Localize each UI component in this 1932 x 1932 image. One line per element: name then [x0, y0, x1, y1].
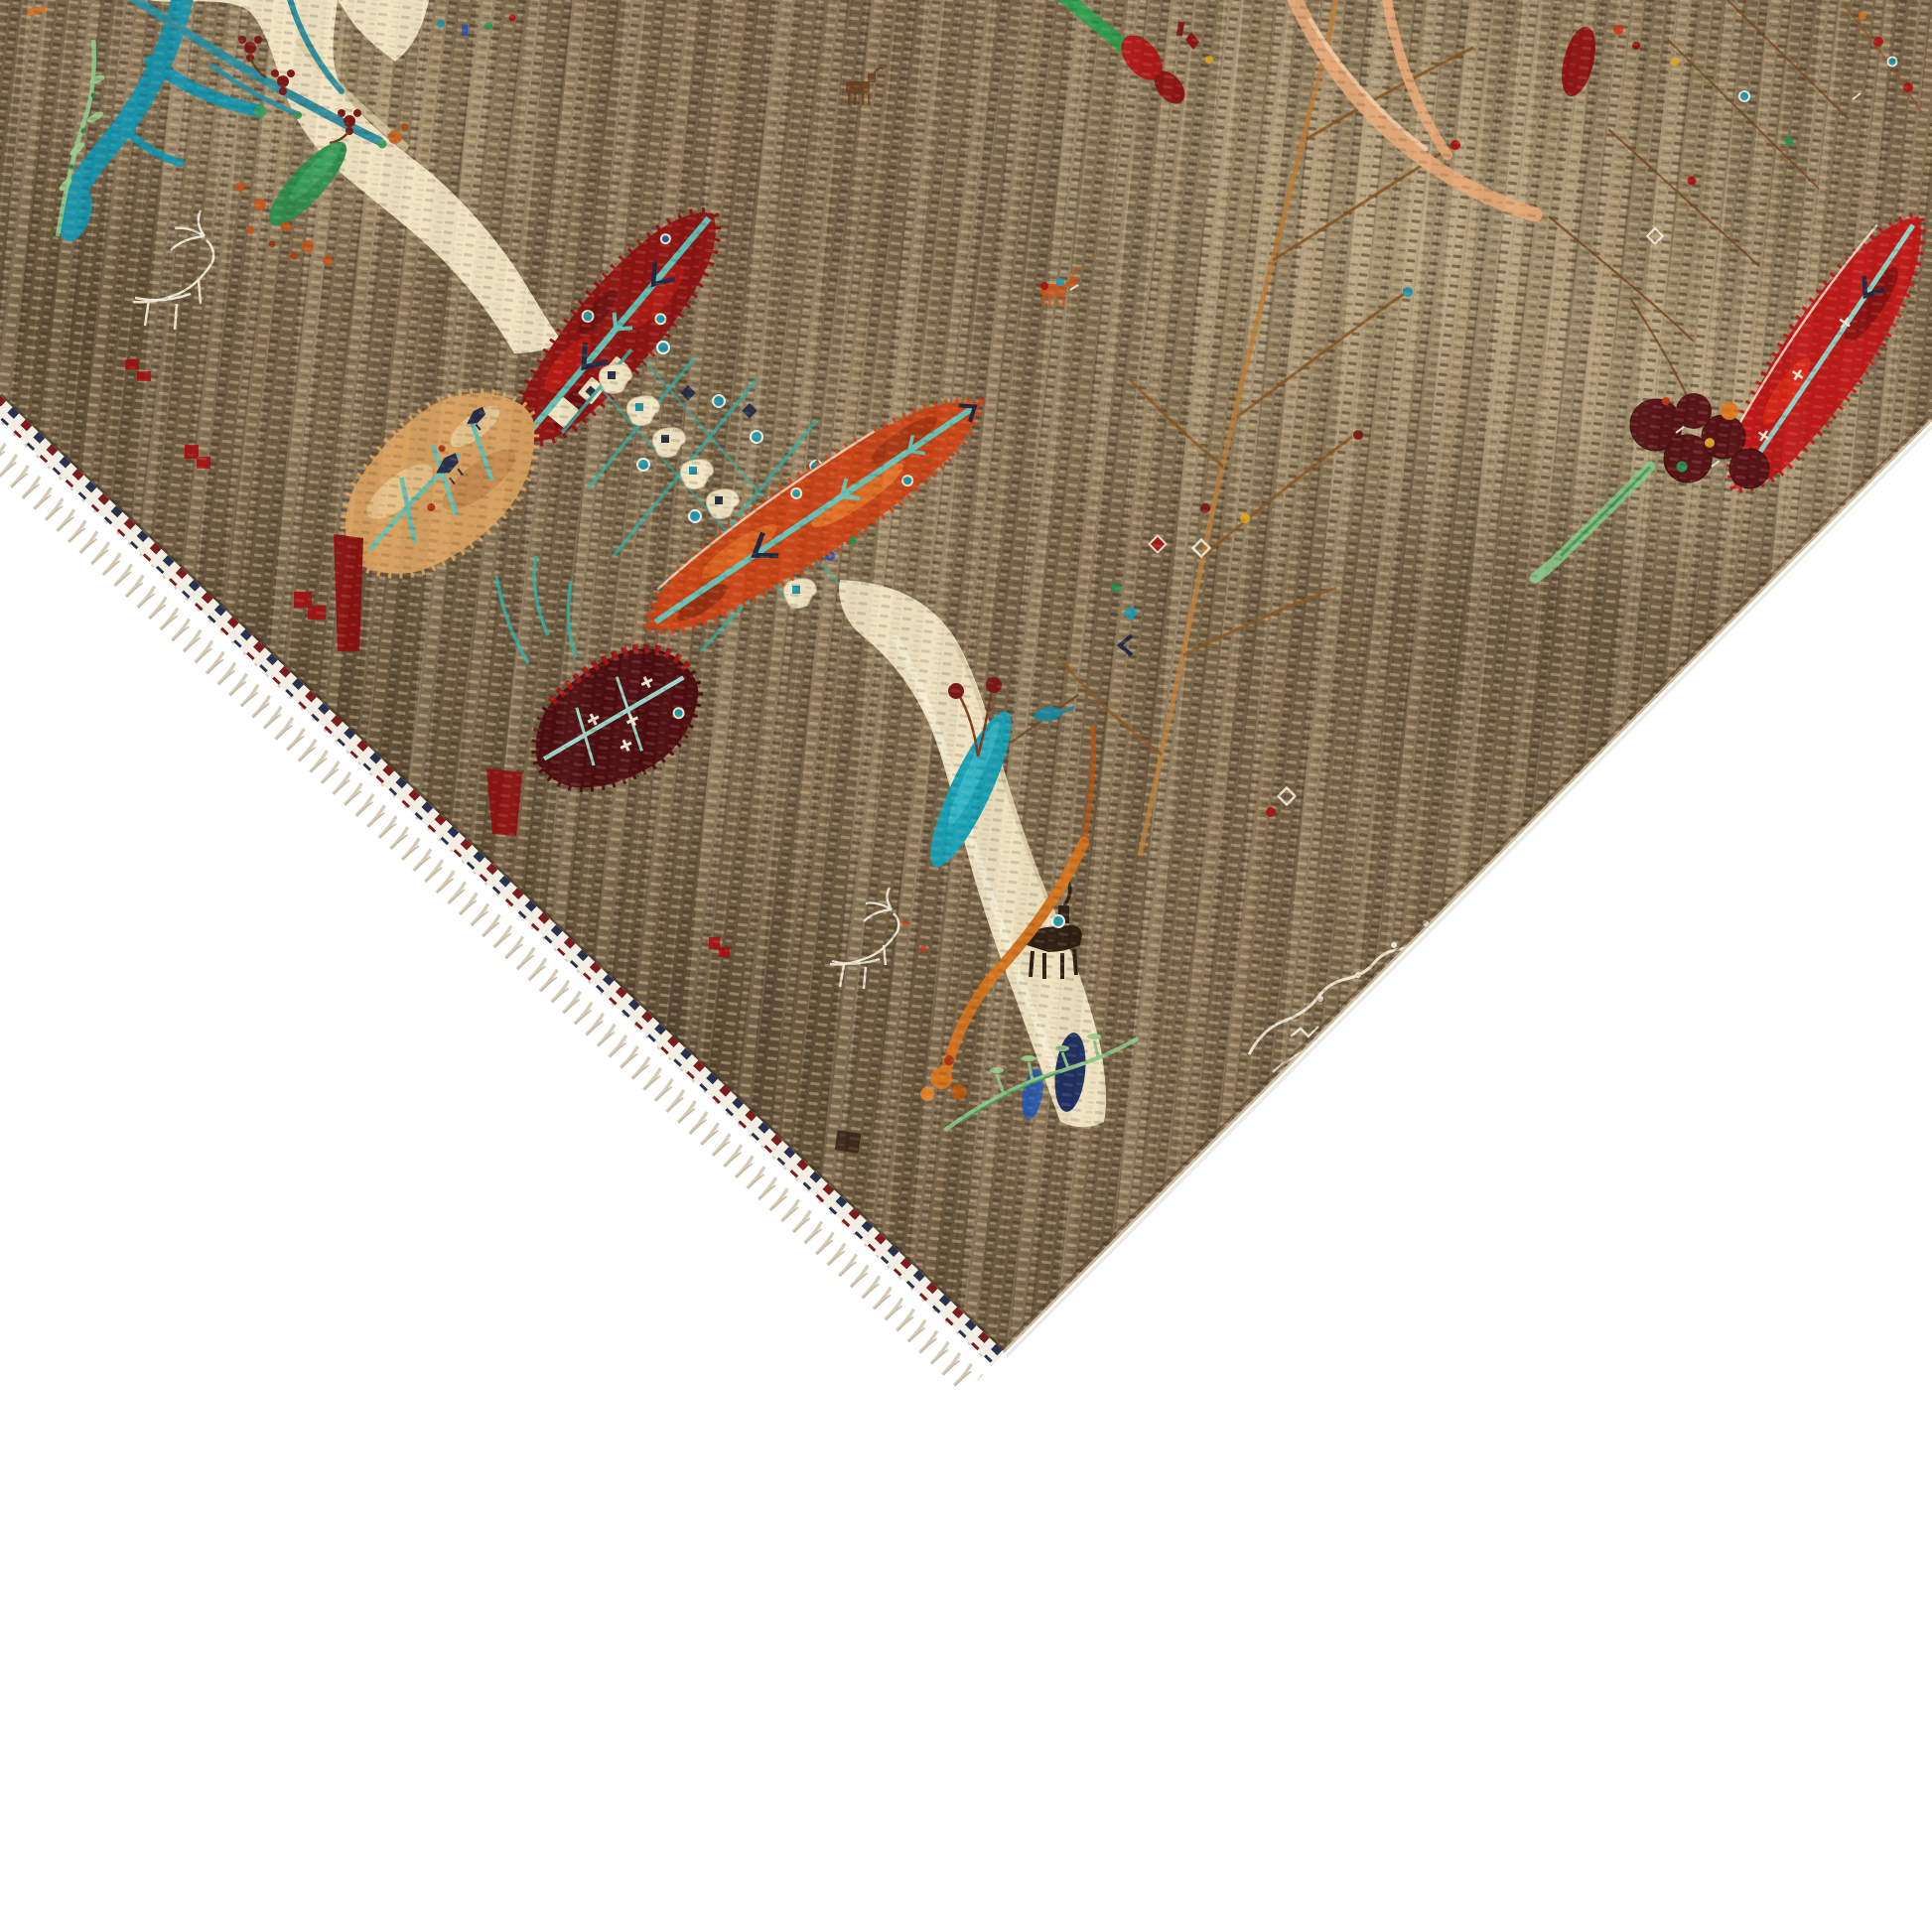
- rug: [0, 0, 1932, 1932]
- rug-product-photo: Hand-knotted tribal rug corner on white …: [0, 0, 1932, 1932]
- band-overlay: [0, 0, 1932, 1932]
- rug-canvas: Hand-knotted tribal rug corner on white …: [0, 0, 1932, 1932]
